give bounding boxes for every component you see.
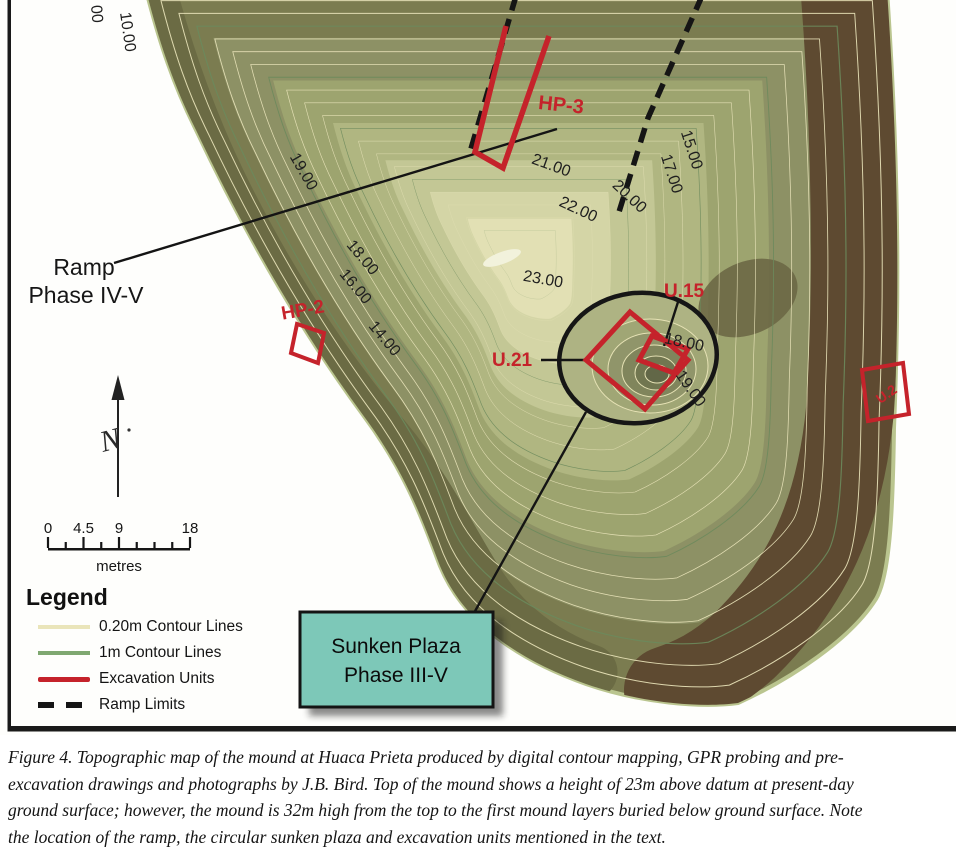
figure-page: 0010.0019.0018.0016.0014.0021.0022.0020.… (0, 0, 956, 860)
scale-tick (136, 542, 138, 548)
contour-label: 00 (87, 4, 106, 23)
legend-item-label: 1m Contour Lines (99, 644, 221, 662)
legend-items: 0.20m Contour Lines1m Contour LinesExcav… (18, 619, 268, 713)
plaza-callout: Sunken Plaza Phase III-V (300, 612, 503, 716)
scale-tick (153, 542, 155, 548)
ramp-limit-swatch (38, 702, 90, 708)
legend-title: Legend (26, 584, 268, 611)
excavation-label: U.15 (664, 281, 705, 302)
ramp-label-line2: Phase IV-V (28, 282, 144, 308)
frame-bottom (8, 726, 956, 732)
legend-row: 0.20m Contour Lines (38, 619, 268, 635)
plaza-box (300, 612, 493, 707)
legend-row: Ramp Limits (38, 697, 268, 713)
caption-line-1: Figure 4. Topographic map of the mound a… (8, 744, 956, 771)
scale-tick (171, 542, 173, 548)
frame-left (8, 0, 12, 731)
scale-tick-label: 9 (115, 520, 123, 537)
north-dot (127, 428, 130, 431)
ramp-label-line1: Ramp (53, 254, 114, 280)
scale-unit: metres (96, 558, 142, 575)
legend-item-label: 0.20m Contour Lines (99, 618, 243, 636)
legend-item-label: Excavation Units (99, 670, 214, 688)
legend: Legend 0.20m Contour Lines1m Contour Lin… (18, 584, 268, 723)
scale-tick-label: 4.5 (73, 520, 94, 537)
figure-caption: Figure 4. Topographic map of the mound a… (8, 744, 956, 850)
scale-tick (100, 542, 102, 548)
fine-contour-swatch (38, 625, 90, 629)
plaza-box-line1: Sunken Plaza (331, 635, 461, 658)
excavation-label: U.21 (492, 350, 533, 371)
caption-line-4: the location of the ramp, the circular s… (8, 824, 956, 851)
excavation-unit-swatch (38, 677, 90, 682)
legend-row: 1m Contour Lines (38, 645, 268, 661)
major-contour-swatch (38, 651, 90, 655)
legend-item-label: Ramp Limits (99, 696, 185, 714)
scale-tick (189, 537, 191, 548)
scale-tick (82, 537, 84, 548)
plaza-box-line2: Phase III-V (344, 664, 448, 687)
scale-tick-label: 0 (44, 520, 52, 537)
legend-row: Excavation Units (38, 671, 268, 687)
caption-line-2: excavation drawings and photographs by J… (8, 771, 956, 798)
scale-tick (47, 537, 49, 548)
caption-line-3: ground surface; however, the mound is 32… (8, 797, 956, 824)
scale-tick (118, 537, 120, 548)
scale-tick (65, 542, 67, 548)
scale-tick-label: 18 (182, 520, 199, 537)
